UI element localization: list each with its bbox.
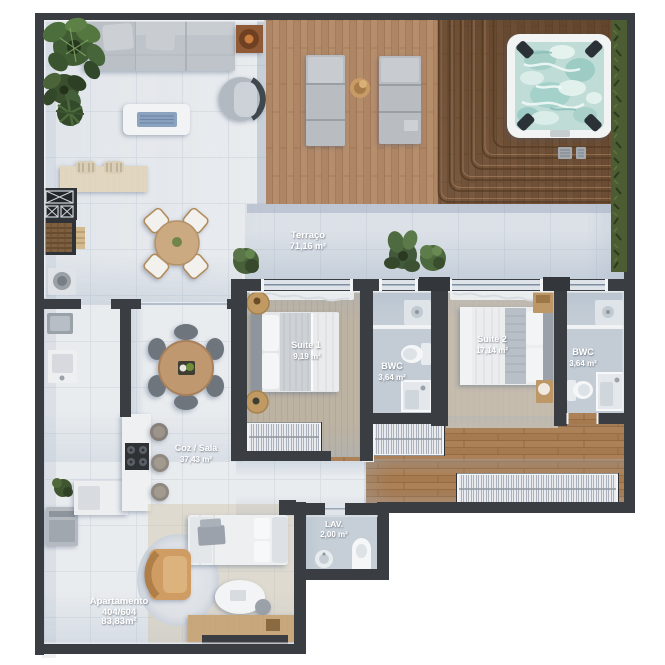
svg-text:Apartamento: Apartamento xyxy=(90,596,149,607)
svg-text:37,43 m²: 37,43 m² xyxy=(180,455,212,464)
svg-text:17,14 m²: 17,14 m² xyxy=(476,346,508,355)
svg-text:83,83m²: 83,83m² xyxy=(101,616,136,627)
svg-text:3,64 m²: 3,64 m² xyxy=(378,373,406,382)
svg-text:2,00 m²: 2,00 m² xyxy=(320,530,348,539)
svg-text:Suite 1: Suite 1 xyxy=(291,340,321,350)
svg-text:3,64 m²: 3,64 m² xyxy=(569,359,597,368)
svg-text:Terraço: Terraço xyxy=(291,230,325,241)
svg-text:Coz / Sala: Coz / Sala xyxy=(175,443,219,453)
svg-text:71,16 m²: 71,16 m² xyxy=(290,241,326,251)
svg-text:LAV.: LAV. xyxy=(325,519,343,529)
svg-text:9,19 m²: 9,19 m² xyxy=(293,352,321,361)
svg-text:Suite 2: Suite 2 xyxy=(477,334,507,344)
svg-text:BWC: BWC xyxy=(381,361,403,371)
svg-text:BWC: BWC xyxy=(572,347,594,357)
